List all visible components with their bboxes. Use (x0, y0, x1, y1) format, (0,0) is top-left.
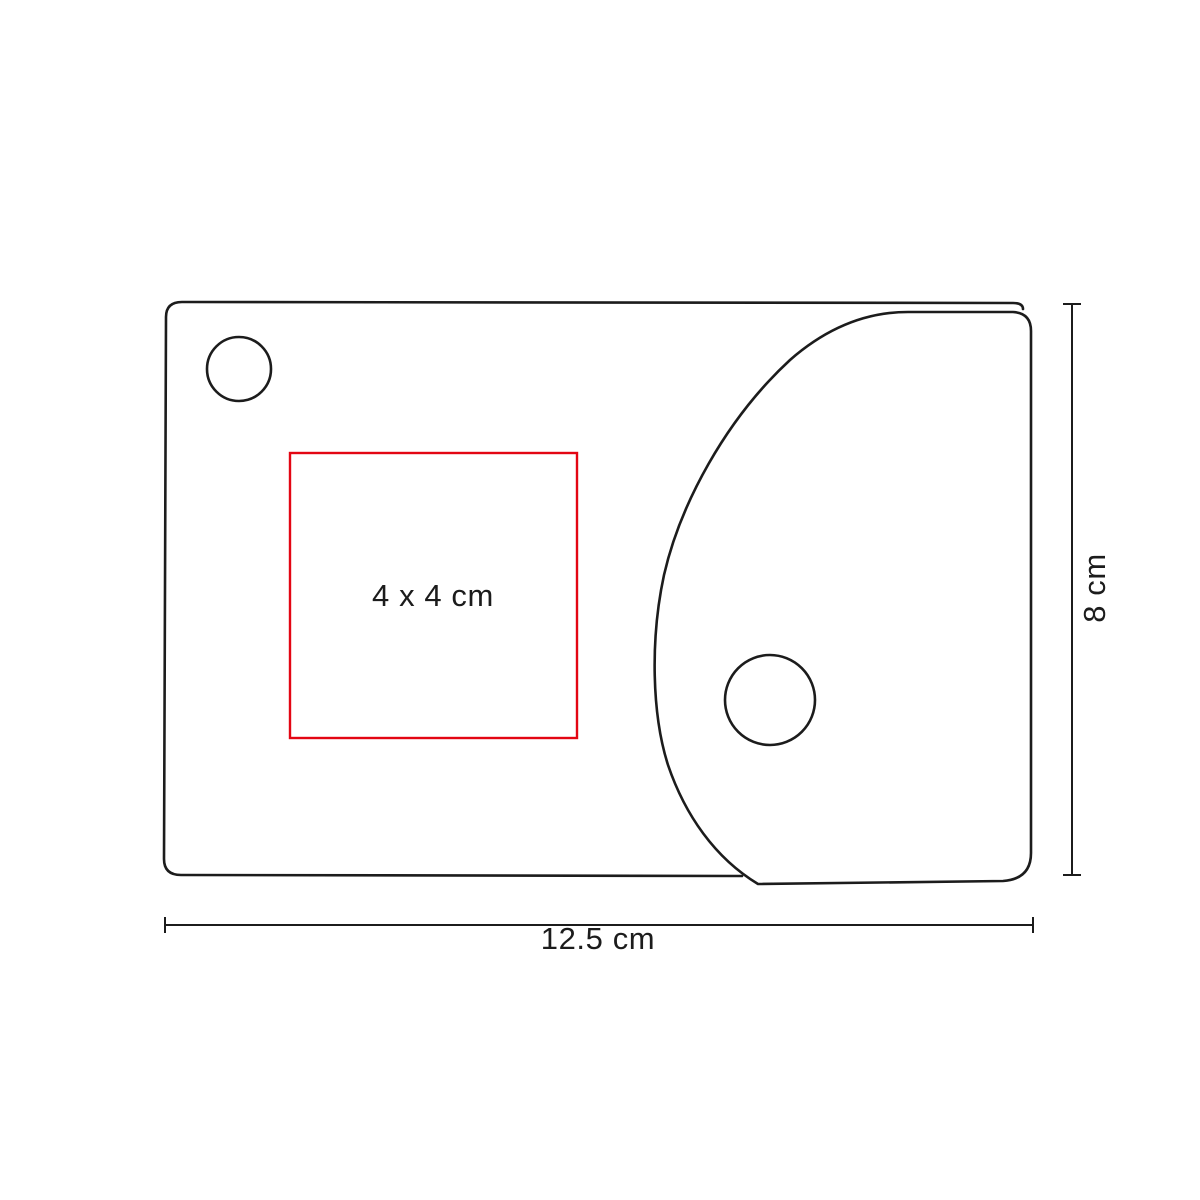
pouch-flap-outline (655, 312, 1031, 884)
pouch-line-drawing (0, 0, 1200, 1200)
product-dimension-diagram: 4 x 4 cm 12.5 cm 8 cm (0, 0, 1200, 1200)
eyelet-hole-circle (207, 337, 271, 401)
print-area-label: 4 x 4 cm (333, 576, 533, 616)
height-dimension-label: 8 cm (1075, 528, 1115, 648)
width-dimension-label: 12.5 cm (498, 918, 698, 960)
